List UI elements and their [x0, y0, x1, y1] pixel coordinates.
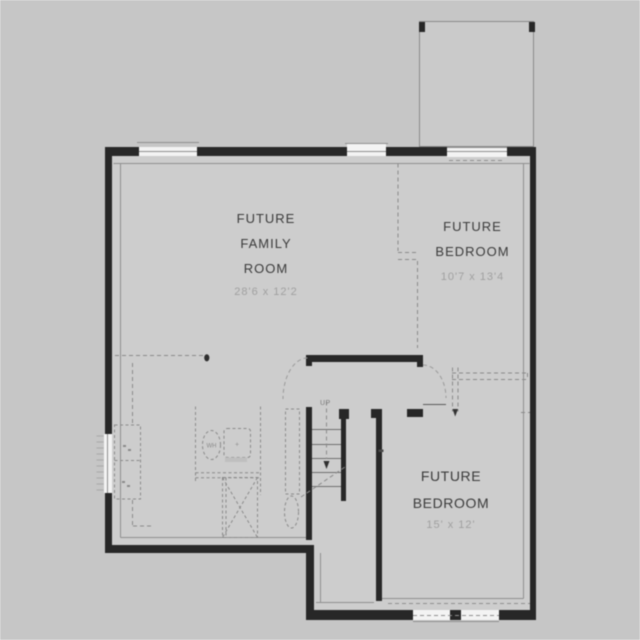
svg-text:WH: WH [207, 444, 217, 450]
svg-text:+: + [235, 442, 239, 449]
